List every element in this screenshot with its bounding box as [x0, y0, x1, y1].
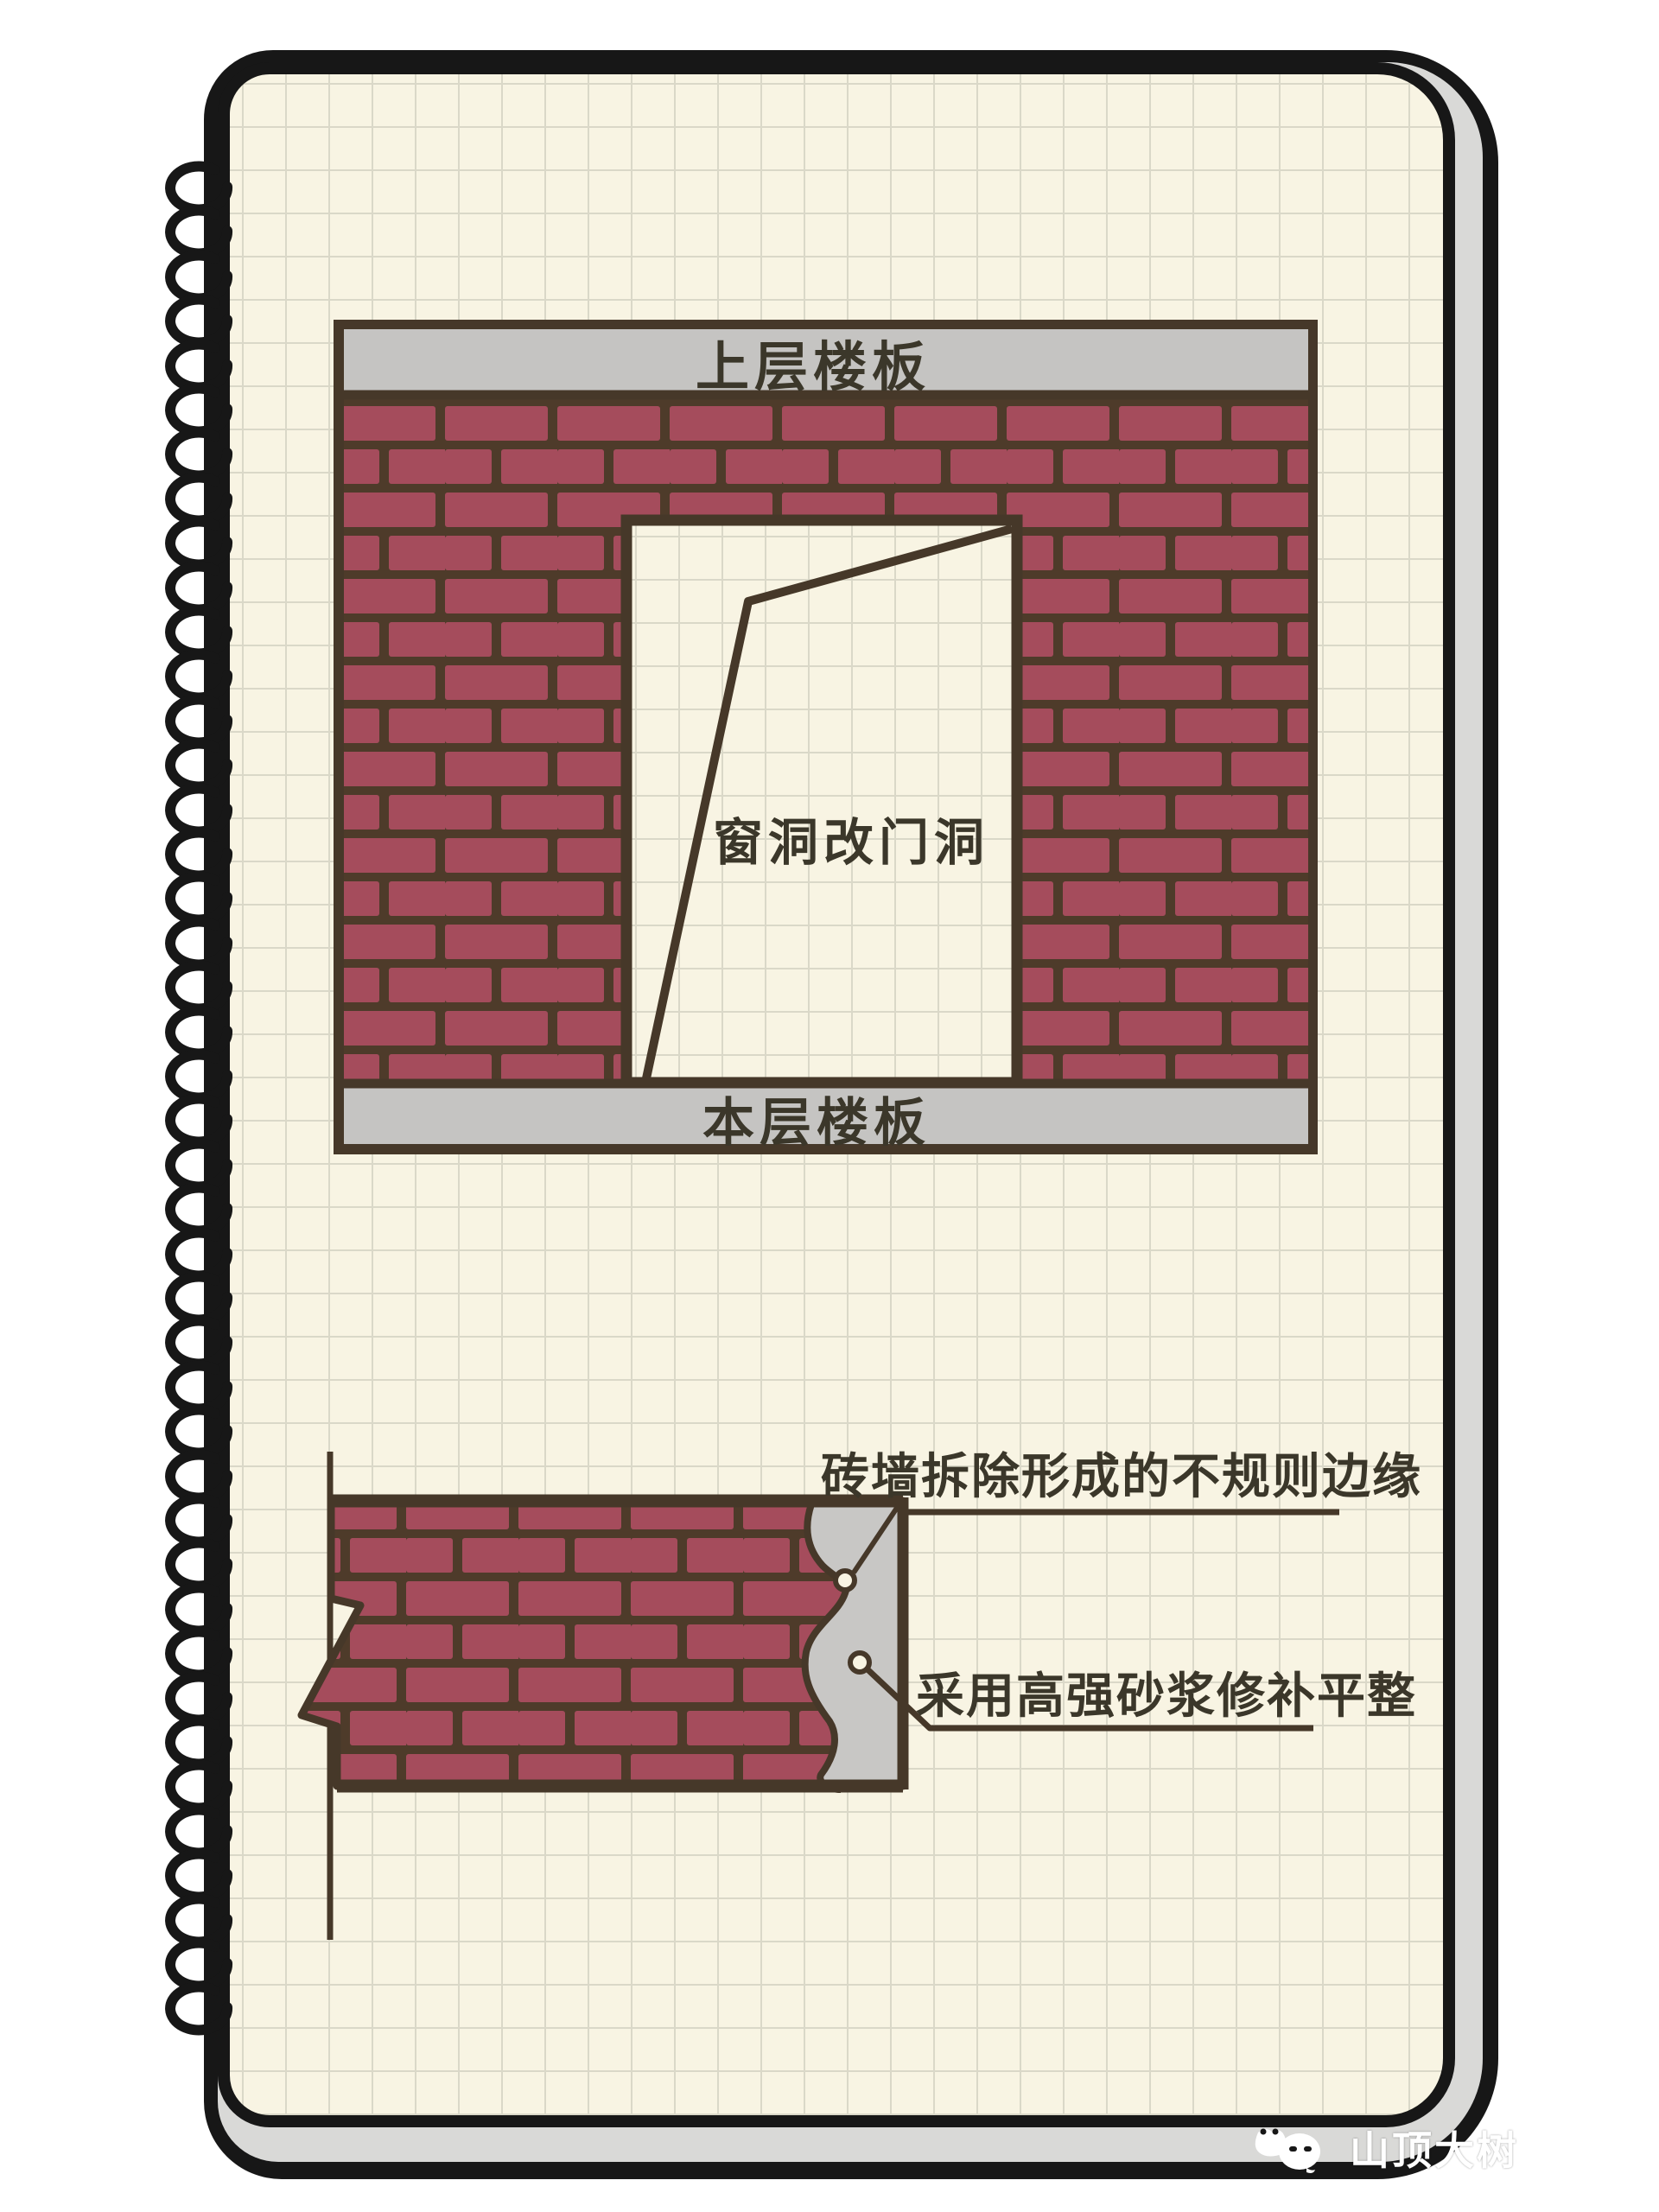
wall-section-diagram: 砖墙拆除形成的不规则边缘 采用高强砂浆修补平整: [294, 1408, 1486, 1979]
wall-elevation-diagram: 上层楼板 本层楼板 窗洞改门洞: [333, 320, 1318, 1162]
door-opening: [626, 520, 1017, 1083]
upper-slab-label: 上层楼板: [696, 335, 931, 398]
leader-irregular-edge: [836, 1505, 1339, 1590]
annotation-irregular-edge: 砖墙拆除形成的不规则边缘: [821, 1449, 1422, 1505]
callout-marker-mortar: [850, 1653, 869, 1672]
lower-slab-label: 本层楼板: [702, 1093, 931, 1154]
annotation-mortar-repair: 采用高强砂浆修补平整: [916, 1669, 1417, 1725]
illustration-canvas: 上层楼板 本层楼板 窗洞改门洞 砖墙拆除形成的不规则边缘 采用高强砂浆修补平整: [0, 0, 1659, 2212]
opening-label: 窗洞改门洞: [713, 813, 989, 872]
watermark-text: 山顶大树: [1350, 2120, 1519, 2177]
spiral-binding: [137, 0, 266, 2212]
panda-tree-logo-icon: [1246, 2120, 1341, 2176]
watermark: 山顶大树: [1246, 2120, 1519, 2176]
callout-marker-edge: [836, 1571, 855, 1590]
